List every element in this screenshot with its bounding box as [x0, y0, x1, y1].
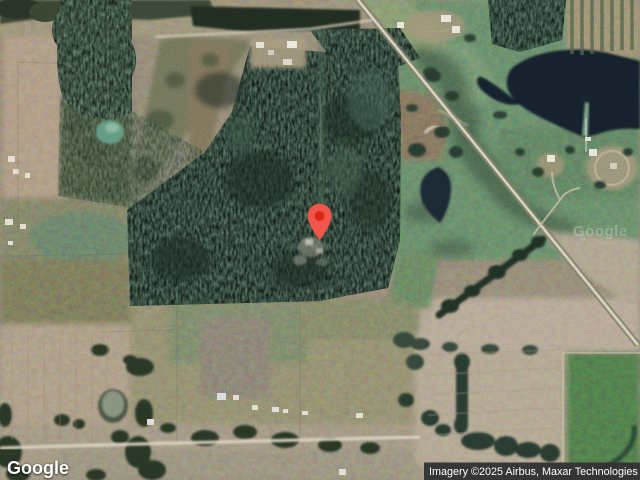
svg-text:Imagery ©2025 Airbus, Maxar Te: Imagery ©2025 Airbus, Maxar Technologies	[429, 466, 638, 478]
svg-text:Google: Google	[573, 223, 628, 240]
svg-text:Google: Google	[7, 458, 69, 478]
